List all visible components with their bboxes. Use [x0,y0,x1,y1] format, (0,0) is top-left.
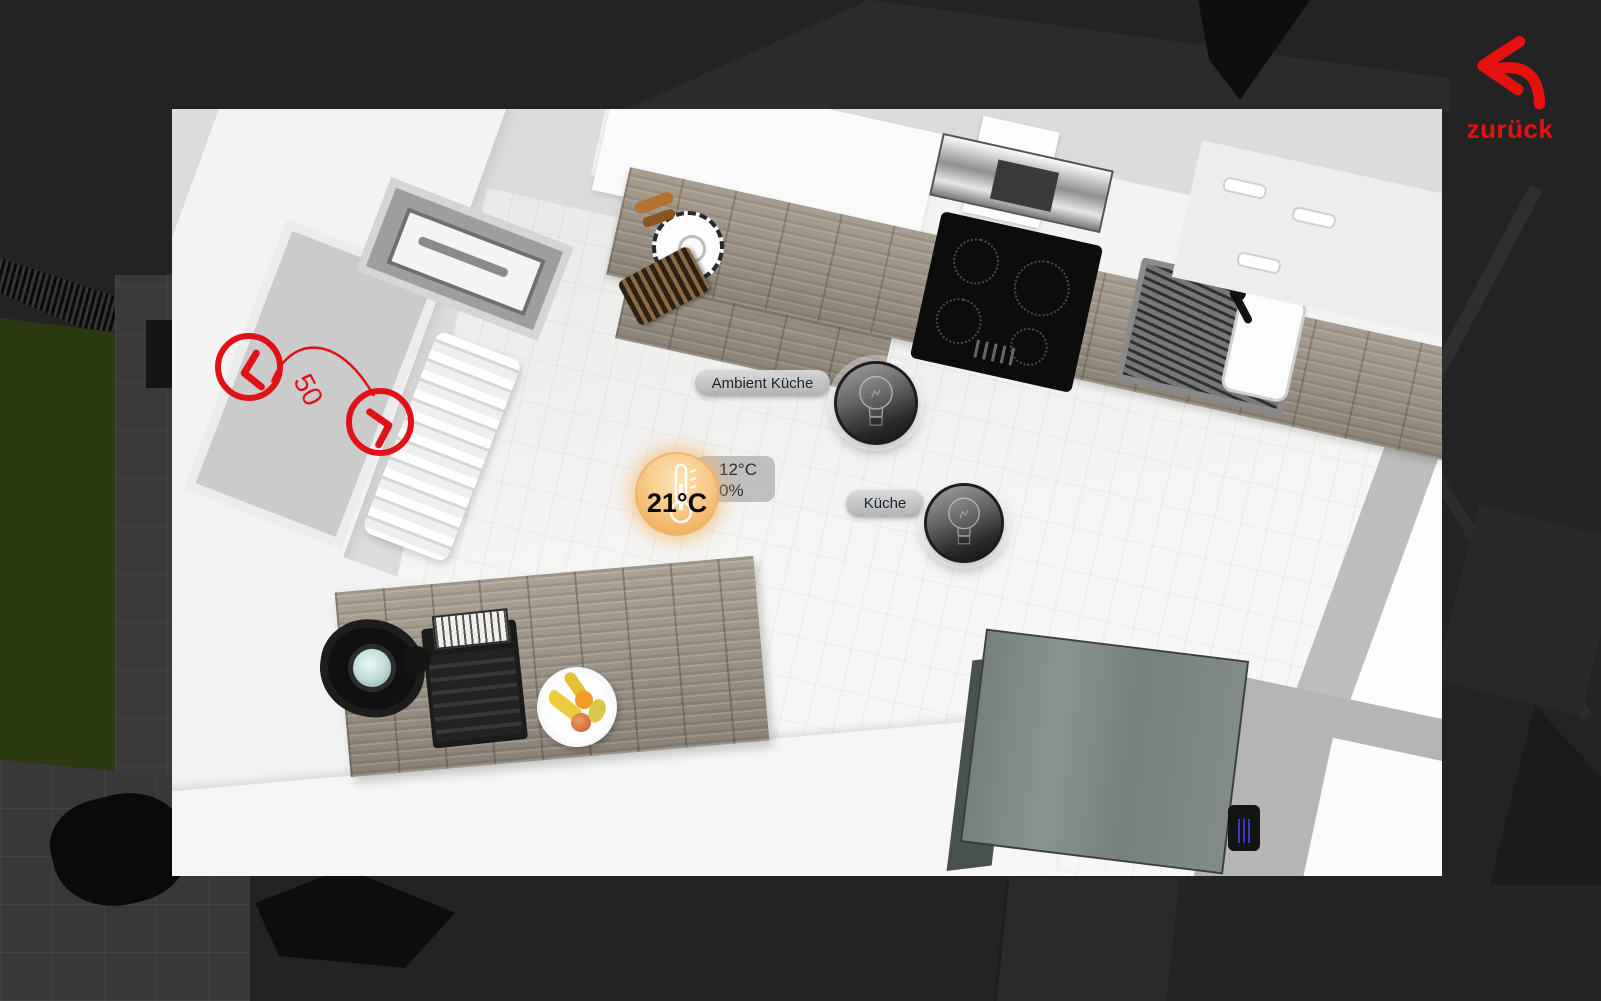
burner [949,234,1004,289]
cabinet-handle [1291,206,1337,230]
cabinet-handle [1236,251,1282,275]
shutter-up-button[interactable] [215,333,283,401]
espresso-machine-top [432,608,511,650]
background-structure [146,320,172,388]
light-button-kueche[interactable] [924,483,1004,563]
thermostat-valve-percent: 0% [719,480,775,501]
thermostat-button[interactable]: 21°C [635,452,719,536]
fruit-bowl [537,667,617,747]
kitchen-floorplan-image [172,109,1442,876]
thermostat-current-temperature: 21°C [637,488,717,519]
background-structure [1490,705,1601,885]
espresso-machine [421,619,528,748]
light-label-text: Küche [864,495,907,512]
smart-home-visu-screen: 50 12°C 0% 21°C Ambient Küche Küche [0,0,1601,1001]
cabinet-handle [1222,176,1268,200]
thermostat-target-temperature: 12°C [719,459,775,480]
light-button-ambient-kueche[interactable] [834,361,918,445]
back-button-label: zurück [1467,114,1554,145]
light-bulb-icon [850,369,902,437]
builtin-sink-handle [417,236,509,278]
island [960,629,1249,875]
light-label-ambient-kueche: Ambient Küche [695,370,830,396]
background-furniture [255,868,455,968]
small-appliance-detail [1238,819,1250,843]
chevron-left-icon [216,334,282,400]
back-button[interactable]: zurück [1445,32,1575,145]
background-structure [1435,505,1601,716]
extractor-hood-filter [990,159,1059,211]
back-arrow-icon [1468,32,1552,112]
background-structure [620,0,1450,112]
light-bulb-icon [939,491,989,555]
chevron-right-icon [347,389,413,455]
light-label-text: Ambient Küche [712,375,814,392]
mixer-bowl [345,641,399,695]
background-structure [994,878,1180,1001]
light-label-kueche: Küche [846,490,924,517]
burner [1008,255,1075,322]
small-appliance [1228,805,1260,851]
espresso-machine-ridges [428,648,523,743]
shutter-down-button[interactable] [346,388,414,456]
